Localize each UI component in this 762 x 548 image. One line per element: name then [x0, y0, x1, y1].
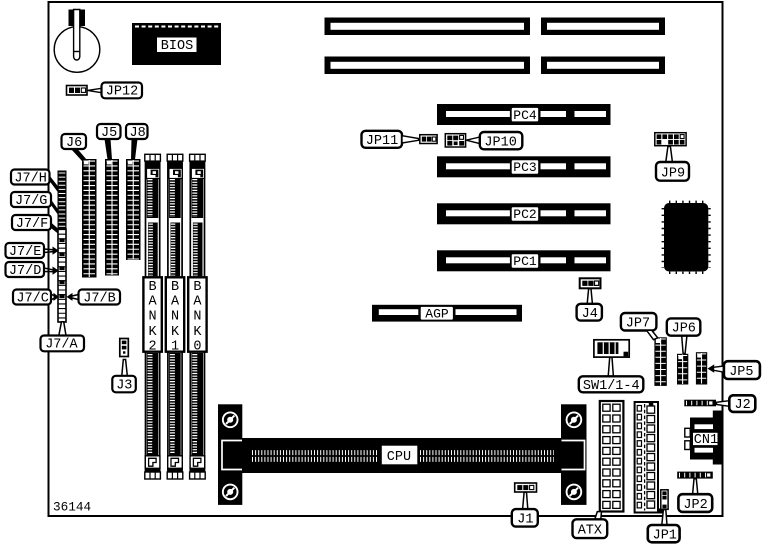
svg-text:36144: 36144	[53, 499, 91, 514]
svg-text:N: N	[171, 309, 179, 324]
svg-text:J5: J5	[101, 126, 117, 141]
svg-text:1: 1	[171, 340, 179, 355]
svg-text:J7/G: J7/G	[15, 194, 47, 209]
svg-text:J2: J2	[735, 398, 751, 413]
svg-text:N: N	[149, 309, 157, 324]
svg-text:J4: J4	[582, 307, 598, 322]
svg-text:J7/D: J7/D	[9, 264, 41, 279]
svg-text:A: A	[193, 295, 202, 310]
svg-text:BIOS: BIOS	[161, 39, 193, 54]
svg-text:SW1/1-4: SW1/1-4	[583, 379, 640, 394]
svg-text:PC2: PC2	[513, 207, 536, 222]
svg-text:N: N	[193, 309, 201, 324]
svg-text:B: B	[193, 280, 201, 295]
svg-text:J7/A: J7/A	[45, 338, 78, 353]
svg-text:K: K	[193, 325, 202, 340]
svg-text:CN1: CN1	[694, 433, 718, 448]
svg-text:J1: J1	[517, 513, 533, 528]
svg-text:ATX: ATX	[578, 524, 602, 539]
svg-text:JP1: JP1	[653, 528, 677, 543]
svg-text:JP5: JP5	[729, 365, 753, 380]
svg-text:B: B	[171, 280, 179, 295]
svg-text:J3: J3	[116, 378, 132, 393]
svg-text:JP7: JP7	[626, 317, 650, 332]
svg-text:J7/C: J7/C	[16, 291, 48, 306]
svg-text:JP9: JP9	[661, 166, 685, 181]
svg-text:K: K	[171, 325, 180, 340]
svg-text:J7/H: J7/H	[14, 171, 46, 186]
svg-text:J7/E: J7/E	[9, 245, 41, 260]
svg-text:JP11: JP11	[366, 134, 398, 149]
svg-text:0: 0	[193, 340, 201, 355]
svg-text:B: B	[149, 280, 157, 295]
svg-text:JP10: JP10	[484, 135, 516, 150]
svg-text:2: 2	[149, 340, 157, 355]
svg-text:JP6: JP6	[672, 322, 696, 337]
svg-text:J6: J6	[66, 136, 82, 151]
svg-text:A: A	[171, 295, 180, 310]
svg-text:AGP: AGP	[425, 307, 449, 322]
svg-text:PC1: PC1	[513, 254, 537, 269]
svg-text:PC4: PC4	[513, 108, 537, 123]
svg-text:J7/B: J7/B	[83, 291, 115, 306]
svg-text:PC3: PC3	[513, 160, 536, 175]
svg-text:A: A	[149, 295, 158, 310]
svg-text:K: K	[149, 325, 158, 340]
svg-text:J7/F: J7/F	[16, 217, 48, 232]
svg-text:JP2: JP2	[683, 498, 707, 513]
svg-text:J8: J8	[130, 126, 146, 141]
svg-text:JP12: JP12	[106, 85, 138, 100]
svg-text:CPU: CPU	[387, 450, 411, 465]
